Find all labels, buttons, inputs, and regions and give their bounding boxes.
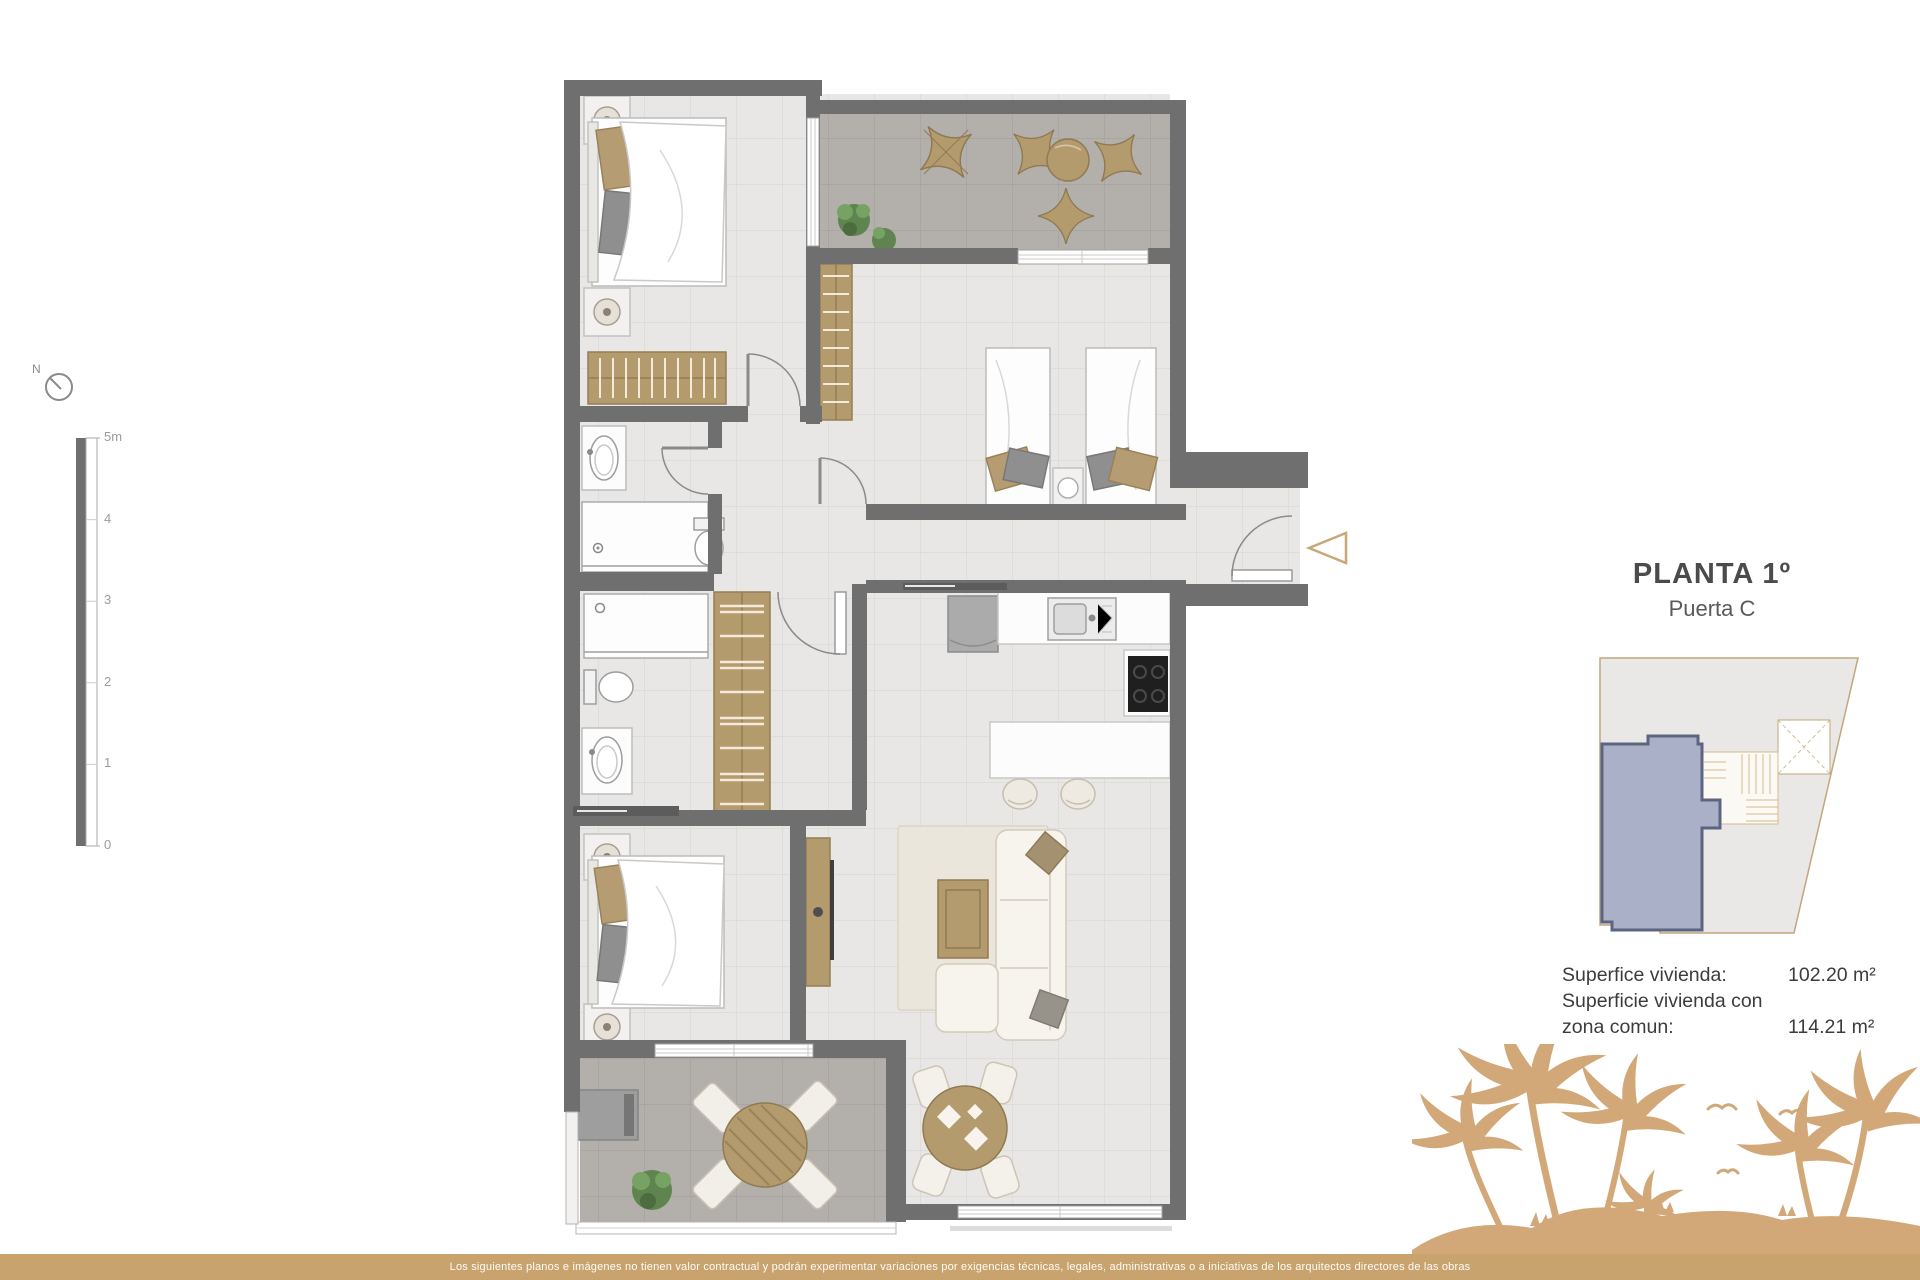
ottoman bbox=[936, 964, 998, 1032]
window bbox=[1018, 250, 1148, 264]
disclaimer-text: Los siguientes planos e imágenes no tien… bbox=[450, 1261, 1471, 1273]
scale-tick-label: 3 bbox=[104, 592, 111, 607]
scale-bar bbox=[76, 437, 100, 847]
scale-bar-labels: 5m 4 3 2 1 0 bbox=[104, 429, 134, 853]
north-compass: N bbox=[30, 362, 90, 404]
page-subtitle: Puerta C bbox=[1556, 596, 1868, 622]
scale-tick-label: 4 bbox=[104, 511, 111, 526]
north-label: N bbox=[32, 362, 41, 376]
area-info: Superfice vivienda: 102.20 m² Superficie… bbox=[1562, 962, 1882, 1040]
toilet bbox=[584, 670, 596, 704]
balcony-railing bbox=[950, 1226, 1172, 1231]
highlighted-unit bbox=[1602, 736, 1720, 930]
scale-tick-label: 1 bbox=[104, 755, 111, 770]
shower bbox=[582, 502, 708, 572]
area-value: 102.20 m² bbox=[1788, 962, 1882, 988]
area-label: Superfice vivienda: bbox=[1562, 962, 1788, 988]
bedroom-1 bbox=[584, 96, 726, 404]
area-label: Superficie vivienda con zona comun: bbox=[1562, 988, 1788, 1040]
duvet bbox=[612, 860, 724, 1006]
area-value: 114.21 m² bbox=[1788, 1014, 1882, 1040]
entrance-door-leaf bbox=[1232, 570, 1292, 581]
floor-plan-page: N 5m 4 3 2 1 0 PLANTA 1º Puerta C Superf… bbox=[0, 0, 1920, 1280]
dining-table bbox=[923, 1086, 1007, 1170]
plant bbox=[632, 1170, 672, 1210]
hallway-wardrobe bbox=[714, 592, 770, 820]
scale-tick-label: 5m bbox=[104, 429, 122, 444]
sink bbox=[590, 436, 618, 480]
scale-tick-label: 0 bbox=[104, 837, 111, 852]
scale-tick-label: 2 bbox=[104, 674, 111, 689]
disclaimer-bar: Los siguientes planos e imágenes no tien… bbox=[0, 1254, 1920, 1280]
fridge bbox=[948, 596, 998, 652]
palm-trees-graphic bbox=[1412, 1044, 1920, 1256]
cooktop bbox=[1128, 656, 1168, 712]
tv bbox=[830, 860, 834, 960]
terrace-top-floor bbox=[820, 114, 1170, 250]
north-compass-icon bbox=[42, 370, 76, 404]
page-title: PLANTA 1º bbox=[1556, 558, 1868, 591]
key-plan bbox=[1596, 650, 1862, 942]
island bbox=[990, 722, 1170, 778]
entrance-arrow-icon bbox=[1309, 533, 1346, 563]
door-leaf bbox=[835, 592, 846, 654]
